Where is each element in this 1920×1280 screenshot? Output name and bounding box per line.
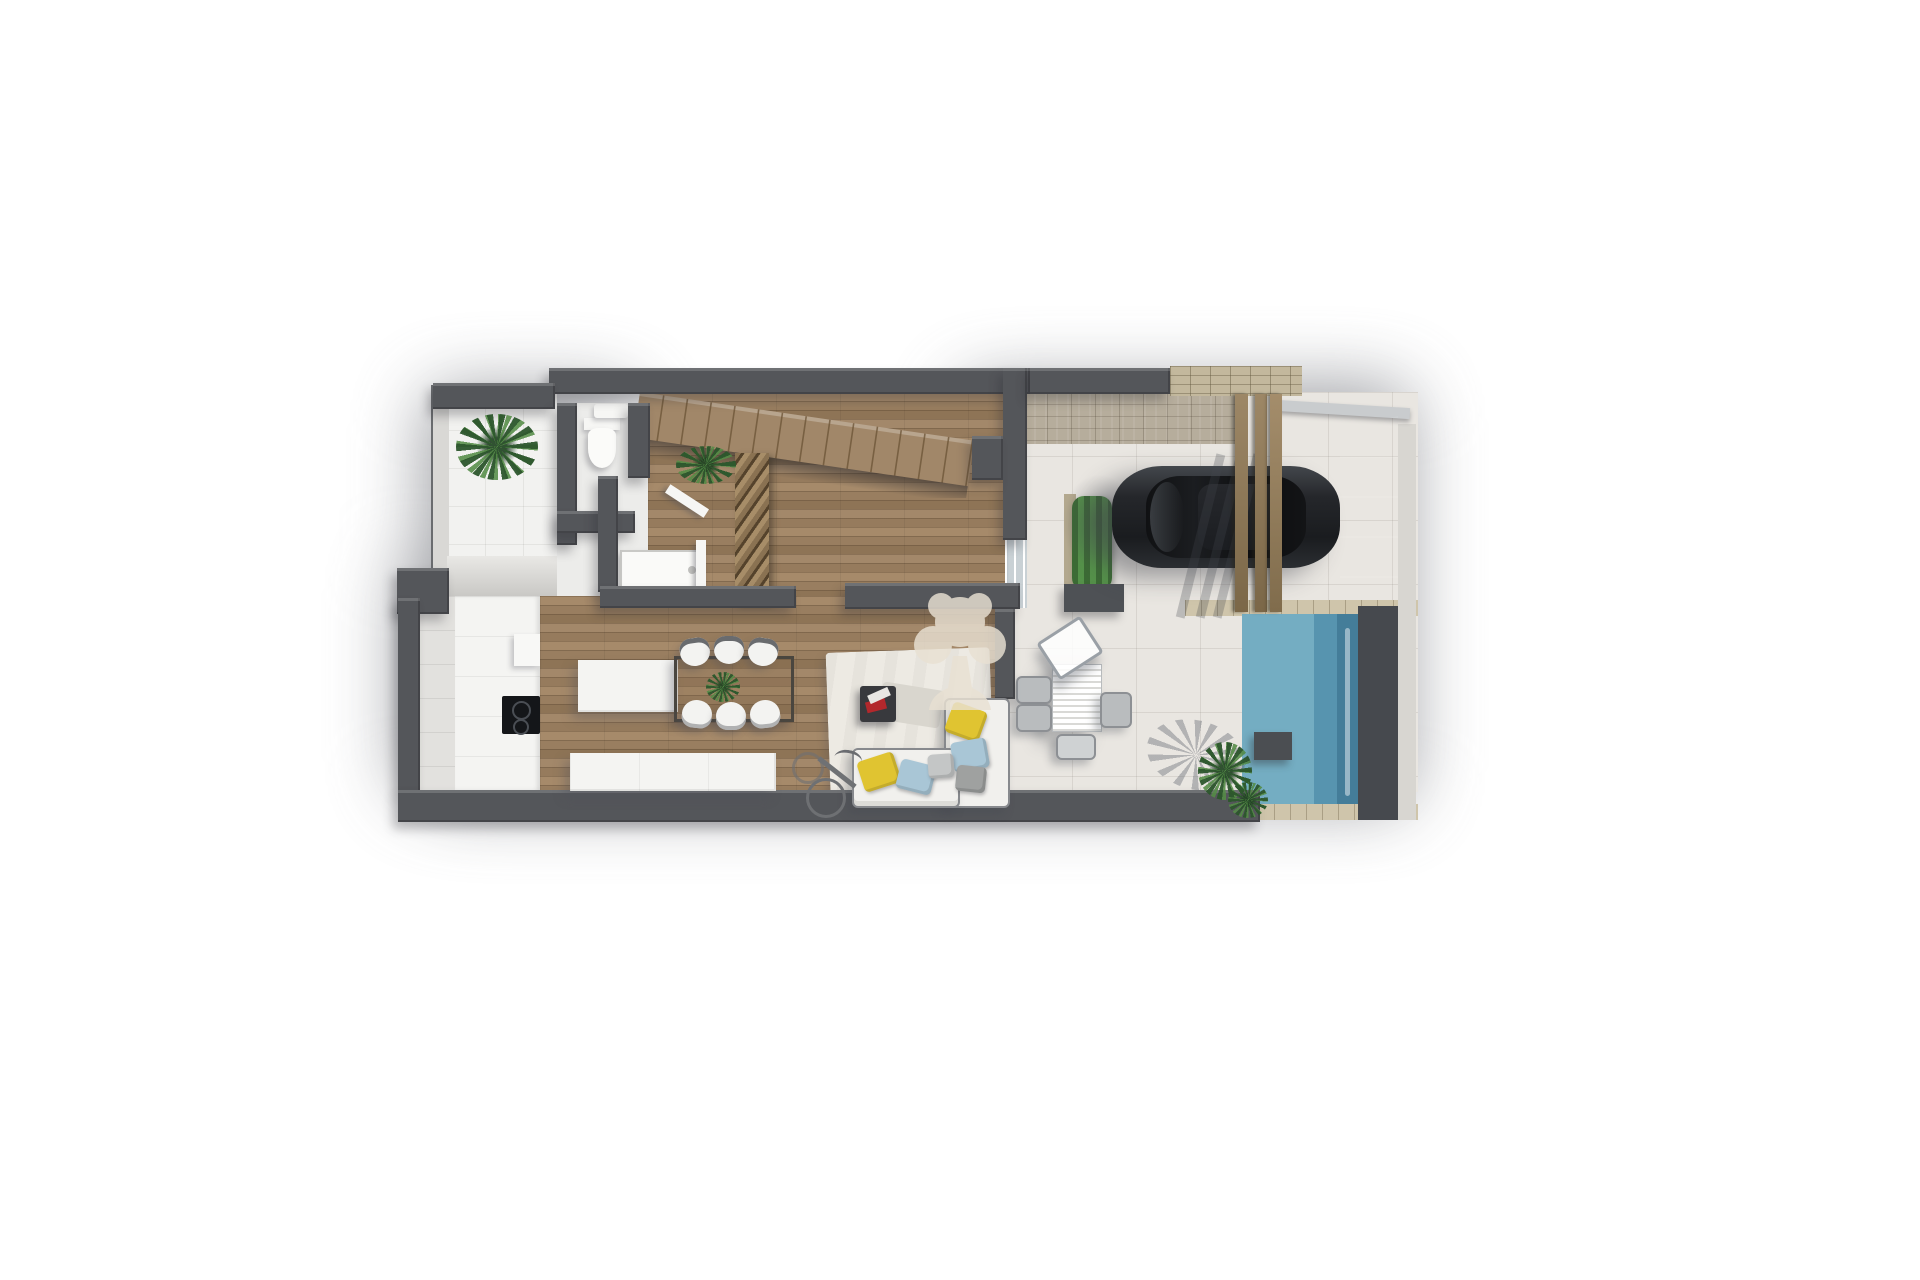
pergola-beam [1235, 394, 1248, 612]
entry-patio-low-wall [447, 556, 557, 600]
wall-stair-stub [972, 436, 1003, 480]
wall-bath-divider [598, 476, 618, 592]
cushion-gray [955, 765, 988, 794]
door-leaf [696, 540, 706, 586]
stone-feature-wall [1170, 366, 1302, 396]
wall-top-main [549, 368, 1030, 394]
pool-side-wall [1358, 606, 1400, 820]
garden-planter-box [1254, 732, 1292, 760]
stair-flight [636, 392, 974, 498]
outdoor-chair [1016, 676, 1052, 704]
slatted-screen [735, 453, 769, 603]
swimming-pool [1242, 614, 1358, 806]
entry-potted-plant [456, 414, 538, 480]
stair-plant [676, 446, 736, 484]
burner [512, 701, 531, 720]
boundary-wall-top [1398, 424, 1416, 820]
outdoor-chair [1056, 734, 1096, 760]
kitchen-island [578, 660, 678, 712]
planter-box [1064, 584, 1124, 612]
burner [513, 719, 529, 735]
car-windshield-highlight [1150, 482, 1184, 552]
bicycle-wheel [806, 778, 846, 818]
sideboard [570, 753, 776, 791]
wall-bath-mid [557, 511, 635, 533]
pergola-beam [1255, 394, 1267, 612]
driveway-stone-paving [1023, 392, 1240, 444]
kitchen-wall-band [420, 596, 455, 792]
wall-kitchen-outer [398, 598, 420, 792]
outdoor-chair [1016, 704, 1052, 732]
storage-shed-roof [1340, 416, 1398, 612]
table-plant [706, 672, 740, 702]
wall-wc-right [628, 403, 650, 478]
kitchen-counter [455, 596, 540, 792]
shower-drain [688, 566, 696, 574]
wall-top-entry [433, 383, 555, 409]
dining-chair [716, 702, 746, 730]
washbasin [594, 404, 628, 418]
cooktop [502, 696, 540, 734]
pool-highlight [1345, 628, 1350, 796]
bicycle [790, 746, 870, 816]
wall-top-driveway [1030, 368, 1170, 394]
cushion-gray [927, 753, 955, 779]
tree-logo-watermark [908, 590, 1012, 730]
outdoor-chair [1100, 692, 1132, 728]
garden-plant [1228, 782, 1268, 818]
pergola-beam [1270, 394, 1282, 612]
floor-plan-render [0, 0, 1920, 1280]
wall-right-upper [1003, 368, 1027, 540]
refrigerator [514, 634, 540, 666]
staircase [636, 386, 982, 498]
bicycle-handlebar [833, 748, 864, 772]
toilet [588, 428, 616, 468]
wall-bath-bottom [600, 586, 796, 608]
dining-chair [714, 636, 744, 664]
